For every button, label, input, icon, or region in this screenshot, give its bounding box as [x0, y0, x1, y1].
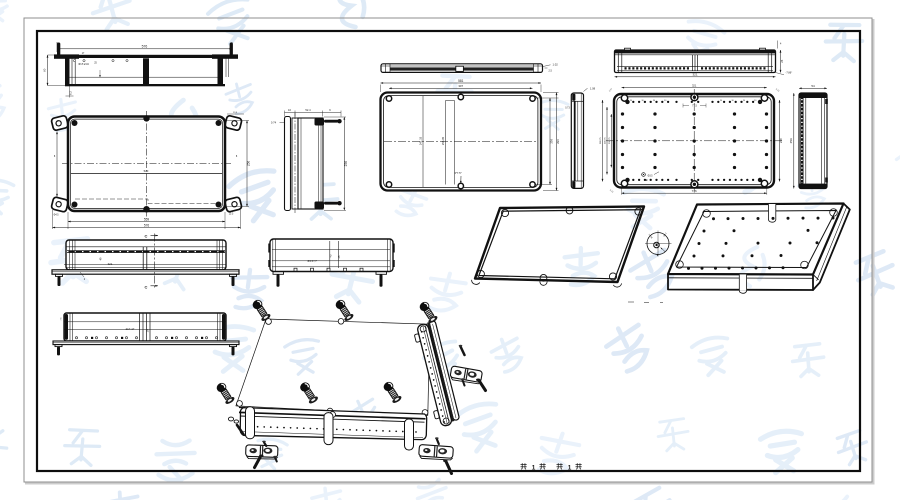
svg-text:1: 1	[532, 464, 536, 471]
svg-text:321: 321	[692, 83, 697, 87]
svg-text:25: 25	[780, 59, 784, 62]
svg-text:Φ3.5▽7: Φ3.5▽7	[307, 259, 317, 263]
svg-text:30: 30	[653, 100, 655, 102]
svg-text:B: B	[646, 178, 648, 182]
svg-text:Φ3.5: Φ3.5	[647, 175, 653, 178]
svg-text:1: 1	[568, 464, 572, 471]
svg-text:30: 30	[743, 100, 745, 102]
svg-text:30: 30	[664, 100, 666, 102]
svg-text:77.5: 77.5	[692, 104, 697, 107]
svg-text:0.74: 0.74	[271, 121, 277, 125]
svg-text:296: 296	[556, 139, 560, 144]
svg-text:0.73: 0.73	[565, 108, 570, 110]
svg-text:321: 321	[692, 73, 697, 77]
svg-text:30: 30	[720, 100, 722, 102]
svg-text:1.08: 1.08	[590, 86, 596, 90]
svg-text:C: C	[145, 285, 148, 290]
svg-text:206.75: 206.75	[609, 137, 611, 144]
svg-text:321: 321	[108, 262, 113, 266]
svg-text:30: 30	[754, 100, 756, 102]
svg-text:246.75: 246.75	[604, 137, 606, 144]
svg-text:30: 30	[732, 100, 734, 102]
svg-text:559: 559	[144, 217, 150, 221]
svg-text:217.17: 217.17	[126, 327, 135, 331]
svg-text:241.33: 241.33	[419, 136, 423, 145]
svg-text:256: 256	[344, 161, 348, 167]
svg-text:581: 581	[458, 79, 464, 83]
svg-text:520: 520	[144, 169, 149, 173]
svg-text:3*7.5°: 3*7.5°	[454, 171, 461, 175]
svg-text:1.02: 1.02	[553, 63, 559, 67]
svg-text:286.75: 286.75	[600, 137, 602, 144]
svg-text:54: 54	[811, 84, 815, 88]
svg-text:776: 776	[692, 189, 697, 193]
svg-text:256: 256	[549, 138, 553, 143]
svg-text:576: 576	[144, 223, 150, 227]
svg-text:60: 60	[43, 68, 47, 72]
svg-text:256: 256	[789, 138, 793, 143]
svg-text:30: 30	[642, 100, 644, 102]
svg-text:Φ3.5▼M4: Φ3.5▼M4	[78, 63, 89, 66]
svg-text:Φ4.5: Φ4.5	[53, 214, 59, 217]
svg-text:256: 256	[247, 161, 251, 167]
svg-text:576: 576	[142, 45, 148, 49]
svg-text:238: 238	[779, 138, 783, 143]
svg-text:10: 10	[288, 108, 291, 112]
svg-text:6.2: 6.2	[68, 91, 72, 95]
svg-text:256.05: 256.05	[441, 136, 445, 145]
svg-text:52.4: 52.4	[305, 108, 311, 112]
svg-text:30: 30	[630, 100, 632, 102]
svg-text:13.5: 13.5	[229, 214, 234, 216]
svg-text:-7.86°: -7.86°	[786, 72, 793, 75]
svg-text:307: 307	[458, 84, 463, 88]
svg-text:C: C	[145, 234, 148, 239]
